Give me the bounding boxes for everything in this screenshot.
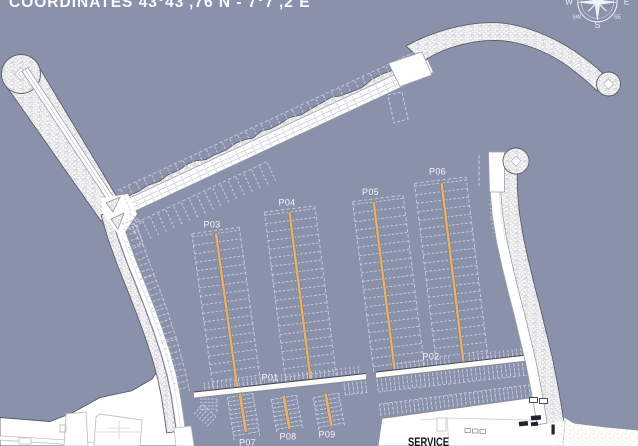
svg-text:P05: P05: [362, 187, 379, 197]
svg-text:P06: P06: [429, 167, 446, 177]
svg-text:SERVICE: SERVICE: [408, 437, 449, 446]
svg-text:P02: P02: [423, 352, 440, 362]
svg-text:COORDINATES 43°43',76 N - 7°7': COORDINATES 43°43',76 N - 7°7',2 E: [9, 0, 311, 11]
svg-text:SE: SE: [614, 15, 622, 21]
svg-text:S: S: [594, 20, 600, 30]
svg-text:E: E: [624, 0, 629, 7]
svg-text:P07: P07: [239, 438, 256, 446]
svg-text:P04: P04: [279, 198, 296, 208]
svg-text:P09: P09: [319, 430, 336, 440]
svg-text:P01: P01: [262, 373, 279, 383]
svg-text:SW: SW: [572, 15, 582, 21]
svg-text:P03: P03: [204, 220, 221, 230]
svg-text:W: W: [565, 0, 573, 7]
svg-text:P08: P08: [280, 432, 297, 442]
